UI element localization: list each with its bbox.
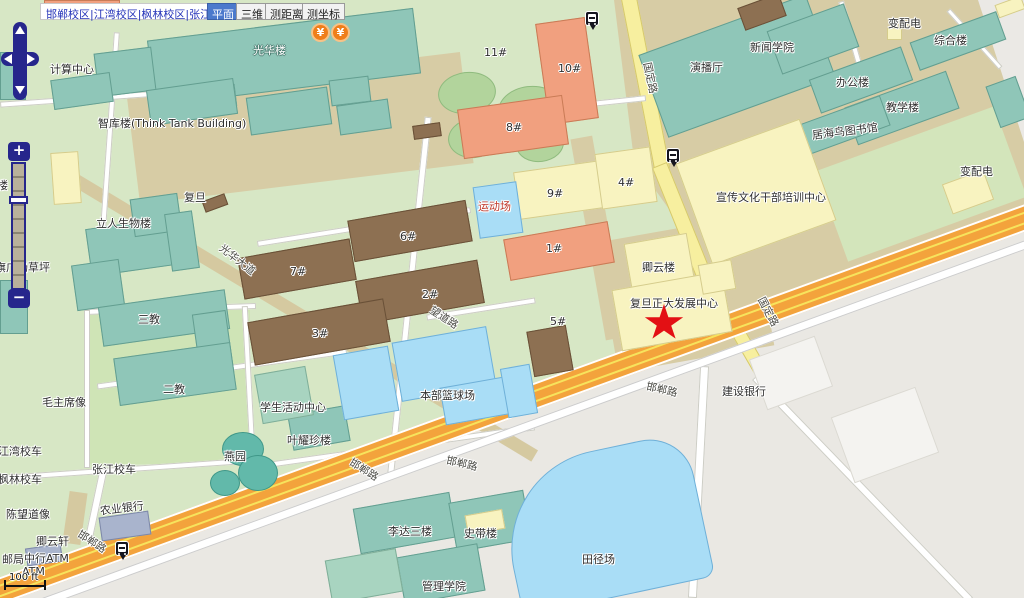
map-label: 江湾校车 [0,446,42,458]
map-label: 本部篮球场 [420,390,475,402]
map-label: 管理学院 [422,581,466,593]
map-label: 建设银行 [722,386,766,398]
map-label: 1# [546,243,562,255]
map-label: 2# [422,289,438,301]
zoom-slider-handle[interactable] [9,196,28,204]
map-label: 光华楼 [253,45,286,57]
map-label: 综合楼 [934,35,967,47]
bus-stop-icon[interactable] [666,148,680,163]
building [71,259,125,311]
pan-up-arrow-icon[interactable] [15,26,25,34]
map-label: 3# [312,328,328,340]
map-label: 教学楼 [886,102,919,114]
pan-right-arrow-icon[interactable] [27,54,35,64]
map-label: 中行ATM [24,553,69,565]
zoom-in-button[interactable]: + [8,142,30,161]
building [50,151,82,205]
building [210,470,240,496]
map-label: 8# [506,122,522,134]
bus-pointer [590,25,596,30]
map-scale: 100 ft [0,572,60,598]
building [333,346,400,421]
map-label: 复旦 [184,192,206,204]
pan-compass[interactable] [0,22,40,106]
map-label: 立人生物楼 [96,218,151,230]
bus-pointer [120,555,126,560]
map-label: 计算中心 [50,64,94,76]
map-label: 李达三楼 [388,526,432,538]
coupon-icon[interactable]: ¥ [331,23,350,42]
pan-down-arrow-icon[interactable] [15,86,25,94]
bus-stop-icon[interactable] [115,541,129,556]
map-label: 演播厅 [690,62,723,74]
bus-pointer [671,162,677,167]
map-label: 卿云轩 [36,536,69,548]
map-label: 4# [618,177,634,189]
coupon-icon[interactable]: ¥ [311,23,330,42]
scale-tick [44,580,46,590]
zoom-slider-track[interactable] [11,162,26,290]
map-label: 楼 [0,180,8,192]
scale-bar [4,585,46,587]
map-label: 变配电 [960,166,993,178]
map-label: 7# [290,266,306,278]
toolbar-button-平面[interactable]: 平面 [207,3,239,20]
bus-stop-icon[interactable] [585,11,599,26]
map-canvas[interactable]: 光华楼计算中心智库楼(Think Tank Building)立人生物楼复旦楼国… [0,0,1024,598]
map-label: 张江校车 [92,464,136,476]
map-label: 史带楼 [464,528,497,540]
map-label: 二教 [163,384,185,396]
map-label: 毛主席像 [42,397,86,409]
building [254,366,314,424]
scale-tick [4,580,6,590]
building [50,72,114,110]
map-label: 智库楼(Think Tank Building) [98,118,246,130]
map-label: 运动场 [478,201,511,213]
map-label: 燕园 [224,451,246,463]
bus-glyph [589,17,595,19]
map-label: 变配电 [888,18,921,30]
map-label: 叶耀珍楼 [287,435,331,447]
bus-glyph [119,547,125,549]
map-label: 11# [484,47,507,59]
map-label: 办公楼 [836,77,869,89]
map-label: 复旦正大发展中心 [630,298,718,310]
building [698,259,737,294]
pan-left-arrow-icon[interactable] [4,54,12,64]
toolbar-button-三维[interactable]: 三维 [236,3,268,20]
zoom-out-button[interactable]: − [8,289,30,308]
bus-glyph [670,154,676,156]
map-label: 陈望道像 [6,509,50,521]
building [526,325,573,377]
map-label: 学生活动中心 [260,402,326,414]
map-label: 邮局 [2,554,24,566]
map-label: 5# [550,316,566,328]
map-label: 三教 [138,314,160,326]
map-label: 9# [547,188,563,200]
map-label: 田径场 [582,554,615,566]
map-label: 宣传文化干部培训中心 [716,192,826,204]
map-label: 10# [558,63,581,75]
map-label: 6# [400,231,416,243]
scale-label: 100 ft [9,572,39,583]
map-label: 卿云楼 [642,262,675,274]
map-label: 枫林校车 [0,474,42,486]
map-label: 新闻学院 [750,42,794,54]
road [84,310,90,468]
toolbar-button-测坐标[interactable]: 测坐标 [302,3,345,20]
